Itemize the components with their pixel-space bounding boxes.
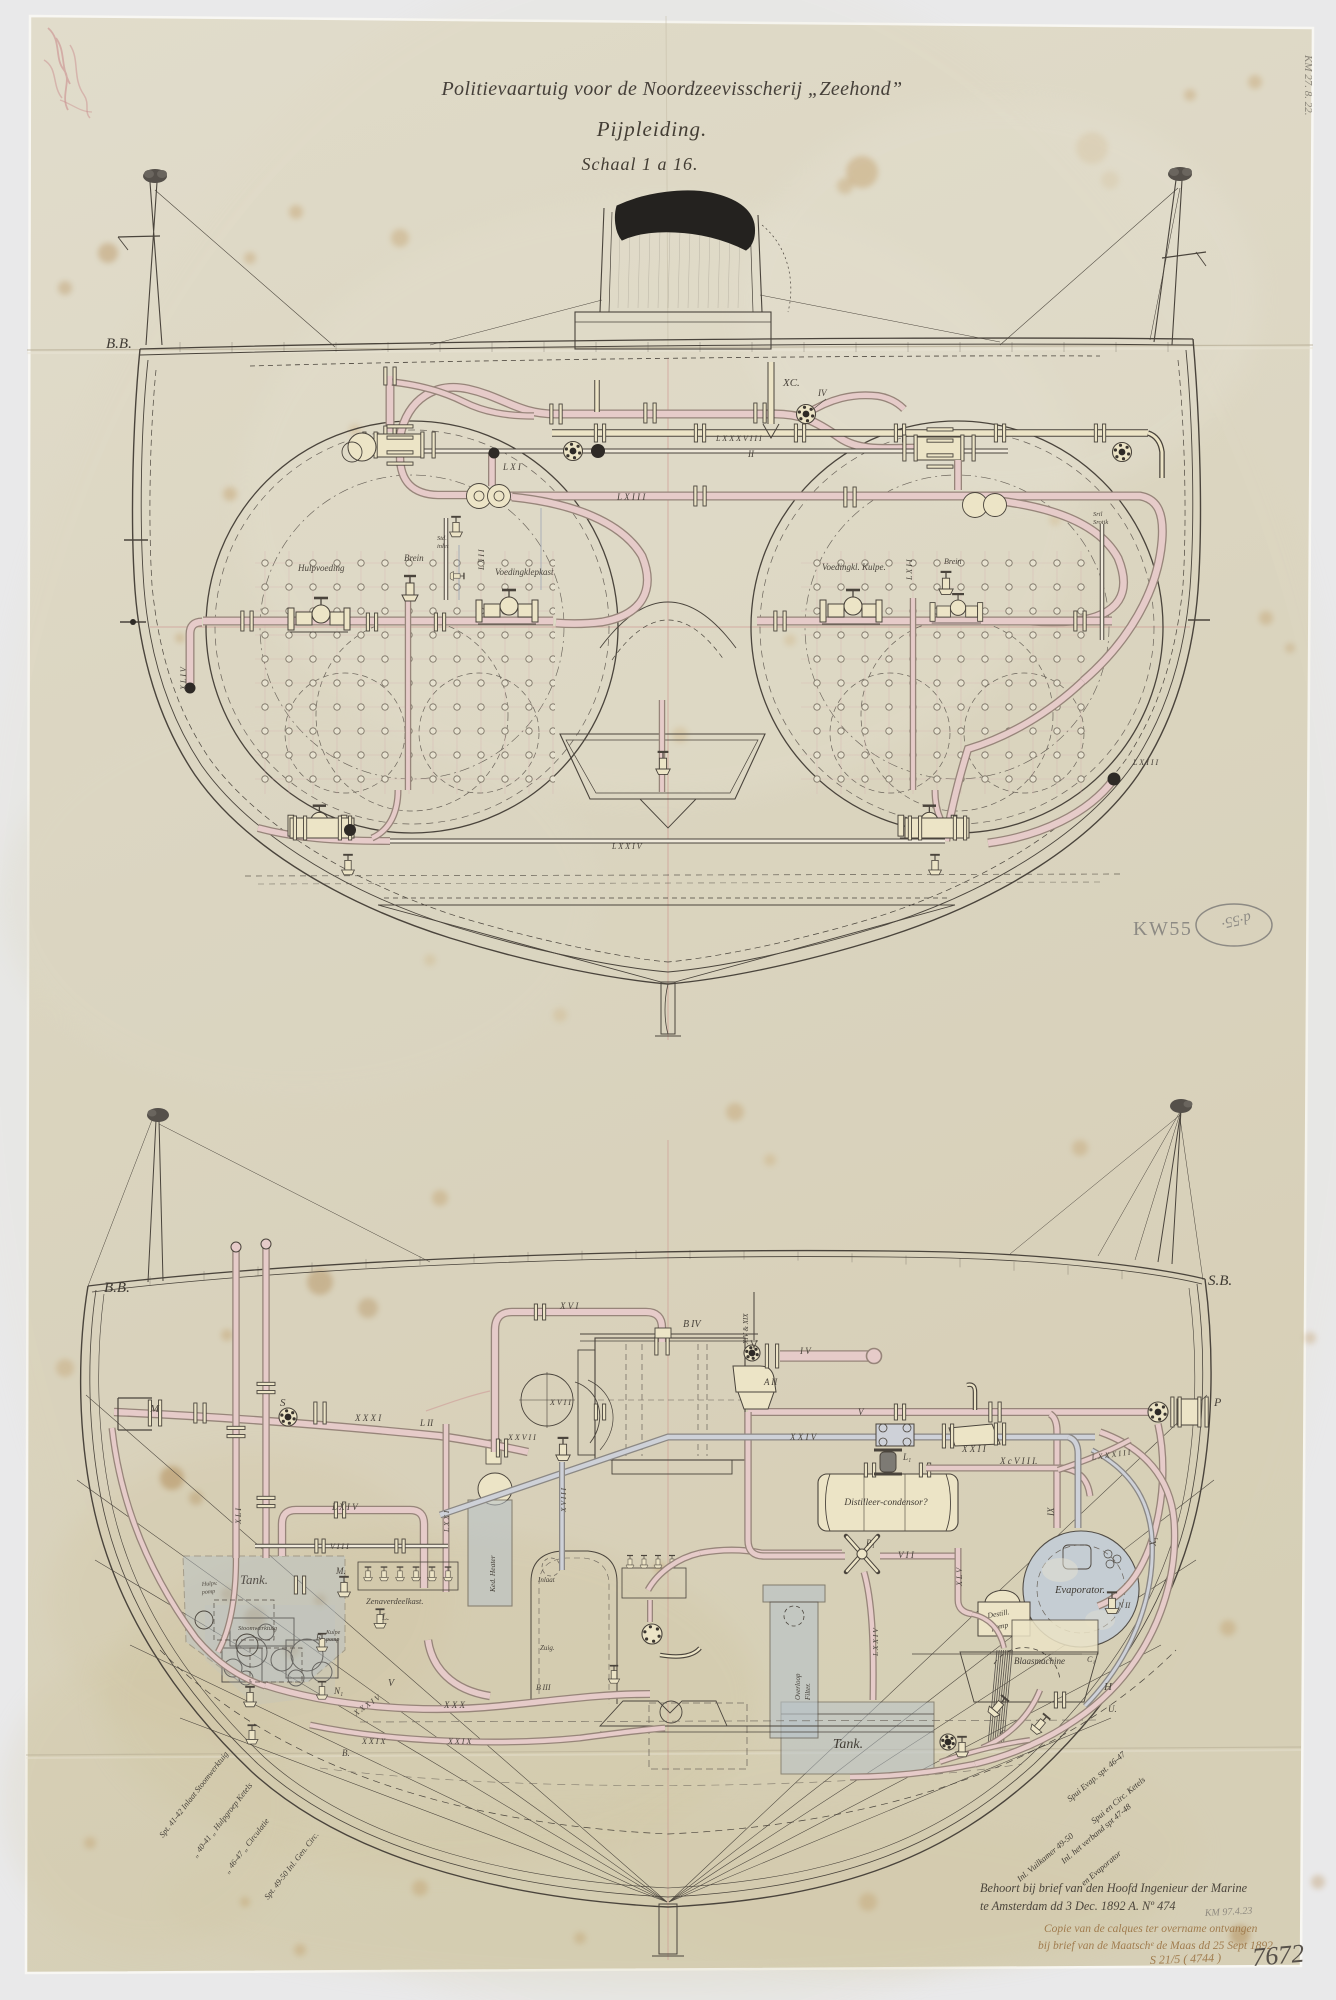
svg-text:Copie van de calques ter overn: Copie van de calques ter overname ontvan…: [1044, 1923, 1258, 1935]
svg-text:Pijpleiding.: Pijpleiding.: [596, 117, 708, 141]
svg-text:X X I V: X X I V: [789, 1432, 818, 1442]
svg-text:Kulpe: Kulpe: [325, 1630, 341, 1636]
svg-text:L X I I I: L X I I I: [616, 492, 646, 502]
svg-text:X L I: X L I: [234, 1508, 243, 1525]
svg-text:Sril: Sril: [1093, 511, 1103, 518]
svg-text:L II: L II: [419, 1418, 434, 1428]
svg-text:L X X X V I I I: L X X X V I I I: [715, 434, 762, 443]
svg-text:Zenaverdeelkast.: Zenaverdeelkast.: [366, 1596, 424, 1606]
svg-text:Evaporator.: Evaporator.: [1054, 1585, 1105, 1596]
svg-text:L X I I: L X I I: [905, 559, 914, 581]
svg-text:X X X I: X X X I: [354, 1413, 382, 1423]
svg-text:S: S: [280, 1397, 286, 1409]
svg-text:XIV & XIX: XIV & XIX: [742, 1313, 750, 1345]
svg-text:A II: A II: [763, 1377, 778, 1387]
svg-text:X X I I: X X I I: [961, 1444, 987, 1454]
svg-text:Tank.: Tank.: [833, 1737, 863, 1752]
svg-text:L X X I V: L X X I V: [611, 842, 643, 851]
svg-text:Tank.: Tank.: [240, 1572, 268, 1587]
svg-text:X X I X: X X I X: [361, 1737, 386, 1746]
svg-text:Voedingklepkast: Voedingklepkast: [495, 567, 554, 577]
svg-text:I V: I V: [799, 1346, 812, 1356]
svg-text:M.: M.: [335, 1566, 346, 1576]
svg-text:Zuig.: Zuig.: [540, 1644, 555, 1652]
svg-text:Blaasmachine: Blaasmachine: [1014, 1656, 1065, 1666]
svg-text:IV: IV: [817, 388, 828, 398]
svg-text:Politievaartuig voor de Noordz: Politievaartuig voor de Noordzeevisscher…: [440, 78, 902, 100]
svg-text:L.: L.: [381, 1612, 389, 1622]
svg-text:Brein: Brein: [404, 553, 424, 563]
svg-text:C₁: C₁: [1087, 1655, 1095, 1664]
svg-text:L X I: L X I: [502, 462, 522, 472]
svg-text:H: H: [1103, 1681, 1113, 1693]
svg-text:inlet: inlet: [437, 543, 449, 550]
svg-text:P₁: P₁: [865, 1538, 875, 1548]
svg-text:B III: B III: [536, 1683, 551, 1692]
svg-text:L X I I I: L X I I I: [1132, 758, 1159, 767]
svg-text:X₁: X₁: [1148, 1537, 1158, 1547]
svg-text:Stoomwerktuig: Stoomwerktuig: [238, 1625, 278, 1632]
svg-text:X V I I: X V I I: [549, 1398, 571, 1407]
svg-text:bij brief van de Maatschᵉ de M: bij brief van de Maatschᵉ de Maas dd 25 …: [1038, 1940, 1273, 1952]
svg-text:KW55: KW55: [1133, 918, 1192, 940]
svg-text:B.: B.: [342, 1748, 350, 1758]
svg-text:pomp: pomp: [325, 1637, 339, 1643]
svg-text:Filter.: Filter.: [804, 1683, 812, 1701]
svg-text:P: P: [1213, 1395, 1222, 1409]
svg-text:Distilleer-condensor?: Distilleer-condensor?: [843, 1498, 927, 1508]
svg-text:X L V: X L V: [955, 1567, 964, 1587]
svg-text:V I I: V I I: [898, 1550, 915, 1560]
svg-text:B.B.: B.B.: [106, 336, 132, 352]
svg-text:II: II: [747, 449, 755, 459]
svg-text:N₁: N₁: [333, 1686, 343, 1696]
svg-text:Overloop: Overloop: [794, 1673, 802, 1700]
svg-text:X X I X: X X I X: [447, 1737, 472, 1746]
svg-text:S 21/5 ( 4744 ): S 21/5 ( 4744 ): [1150, 1951, 1222, 1967]
svg-text:Ked. Heater: Ked. Heater: [488, 1555, 497, 1593]
svg-text:L X X I: L X X I: [442, 1510, 451, 1533]
svg-text:V I I I: V I I I: [330, 1542, 349, 1551]
svg-text:S.B.: S.B.: [1208, 1273, 1232, 1289]
svg-text:Schaal 1 a 16.: Schaal 1 a 16.: [582, 154, 699, 174]
svg-text:U.: U.: [1108, 1704, 1117, 1714]
svg-text:X X X: X X X: [443, 1700, 465, 1710]
svg-text:XC.: XC.: [782, 377, 800, 389]
svg-text:Brein: Brein: [944, 557, 961, 566]
svg-text:M: M: [149, 1403, 160, 1415]
svg-text:X V I I I: X V I I I: [559, 1487, 568, 1513]
svg-text:7672: 7672: [1251, 1939, 1305, 1972]
svg-text:Inlaat: Inlaat: [537, 1576, 556, 1584]
svg-text:te Amsterdam dd 3 Dec. 1892 A.: te Amsterdam dd 3 Dec. 1892 A. Nº 474: [980, 1899, 1176, 1913]
svg-text:X V I: X V I: [559, 1301, 579, 1311]
svg-text:IX: IX: [1046, 1507, 1056, 1517]
svg-text:KM 27. 8. 22.: KM 27. 8. 22.: [1302, 54, 1314, 116]
svg-text:L X I I: L X I I: [477, 549, 486, 571]
svg-text:X X V I I: X X V I I: [507, 1433, 536, 1442]
svg-text:X L I V: X L I V: [179, 666, 188, 691]
svg-text:Behoort bij brief van den Hoof: Behoort bij brief van den Hoofd Ingenieu…: [980, 1881, 1248, 1895]
svg-text:Srotik: Srotik: [1093, 519, 1108, 526]
svg-text:F.: F.: [315, 1633, 322, 1642]
svg-text:L X X I V: L X X I V: [871, 1627, 880, 1657]
svg-text:B IV: B IV: [683, 1319, 702, 1330]
svg-text:Voedingkl. Kulpe.: Voedingkl. Kulpe.: [822, 562, 886, 572]
svg-text:N II: N II: [1117, 1601, 1131, 1610]
svg-text:B.B.: B.B.: [104, 1280, 130, 1296]
svg-text:Hulpvoeding: Hulpvoeding: [297, 563, 345, 573]
svg-text:Std.: Std.: [437, 535, 447, 542]
svg-text:L X I V: L X I V: [331, 1502, 359, 1512]
svg-text:L₁: L₁: [902, 1452, 911, 1462]
svg-text:pomp: pomp: [201, 1589, 216, 1596]
svg-text:X c V I I I.: X c V I I I.: [999, 1456, 1037, 1466]
